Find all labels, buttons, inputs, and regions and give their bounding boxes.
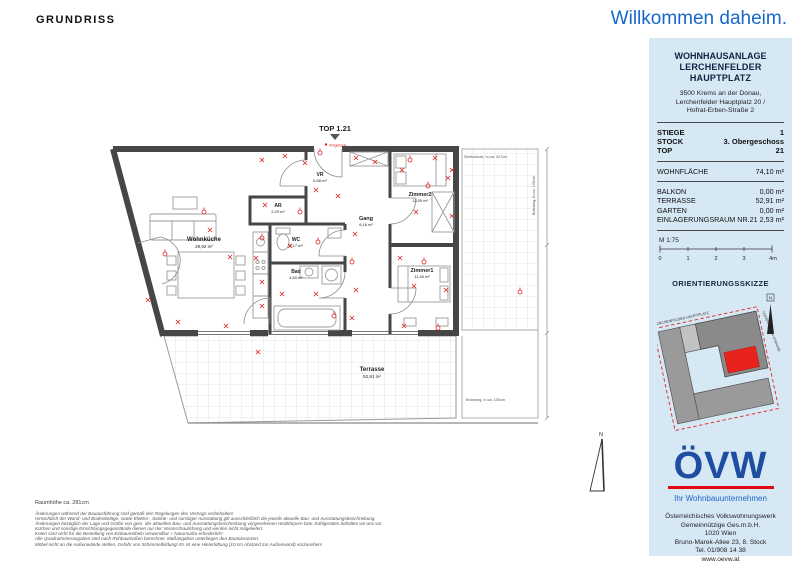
project-title: WOHNHAUSANLAGE LERCHENFELDER HAUPTPLATZ [657,51,784,84]
north-arrow: N [590,432,604,491]
floorplan-drawing: TOP 1.21 Klingeltaste Wohnküche 29,92 m²… [0,0,648,566]
area-row: TERRASSE 52,91 m² [657,196,784,205]
ovw-logo-text: ÖVW [657,445,784,487]
room-area: 6,16 m² [359,222,373,227]
divider [657,181,784,182]
terrace-surface [164,149,538,423]
top-label: TOP 1.21 [319,124,351,133]
address-line: Hofrat-Erben-Straße 2 [657,107,784,116]
company-line: 1020 Wien [657,530,784,539]
company-line: Gemeinnützige Ges.m.b.H. [657,522,784,531]
row-label: TERRASSE [657,196,696,205]
company-line: Bruno-Marek-Allee 23, 8. Stock [657,539,784,548]
sketch-north-label: N [769,296,772,301]
room-height-note: Raumhöhe ca. 281cm [35,500,615,506]
room-area: 2,29 m² [271,209,285,214]
room-area: 2,17 m² [289,243,303,248]
project-title-line1: WOHNHAUSANLAGE [657,51,784,62]
bruestung-bottom-label: Brüstung, h=ca. 100cm [466,398,505,402]
footnotes: Raumhöhe ca. 281cm Änderungen während de… [35,500,615,547]
company-line: Österreichisches Volkswohnungswerk [657,513,784,522]
outdoor-area-rows: BALKON 0,00 m² TERRASSE 52,91 m² GARTEN … [657,187,784,224]
row-value: 21 [776,146,784,155]
plan-sheet: GRUNDRISS Willkommen daheim. [0,0,800,566]
row-value: 74,10 m² [756,167,784,176]
room-name: Terrasse [360,367,385,373]
north-label: N [599,432,603,438]
room-area: 13,09 m² [412,198,428,203]
entrance-arrow-icon [330,134,340,140]
company-line: Tel. 01/908 14 38 [657,547,784,556]
row-value: 3. Obergeschoss [724,137,784,146]
scale-tick: 2 [714,256,717,262]
room-area: 11,40 m² [414,274,430,279]
company-website: www.oevw.at [657,556,784,565]
row-label: TOP [657,146,672,155]
row-label: GARTEN [657,206,687,215]
company-logo: ÖVW Ihr Wohnbauunternehmen [657,445,784,503]
row-label: STOCK [657,137,683,146]
row-value: 2,53 m² [760,215,784,224]
divider [657,122,784,123]
project-title-line2: LERCHENFELDER HAUPTPLATZ [657,62,784,84]
scale-tick: 3 [742,256,745,262]
unit-row: STOCK 3. Obergeschoss [657,137,784,146]
divider [657,230,784,231]
row-label: EINLAGERUNGSRAUM NR.21 [657,215,758,224]
scale-tick: 0 [658,256,661,262]
scale-block: M 1:75 0 1 2 3 4m [657,237,784,267]
row-label: WOHNFLÄCHE [657,167,708,176]
unit-info-rows: STIEGE 1 STOCK 3. Obergeschoss TOP 21 [657,128,784,156]
doorbell-label: Klingeltaste [329,144,347,148]
row-value: 0,00 m² [760,187,784,196]
area-row: EINLAGERUNGSRAUM NR.21 2,53 m² [657,215,784,224]
area-row: BALKON 0,00 m² [657,187,784,196]
row-value: 52,91 m² [756,196,784,205]
unit-row: TOP 21 [657,146,784,155]
address-line: Lerchenfelder Hauptplatz 20 / [657,99,784,108]
living-area-row: WOHNFLÄCHE 74,10 m² [657,162,784,181]
sketch-north-arrow: N [767,294,774,334]
orientation-sketch: LERCHENFELDER HAUPTPLATZ HOFRAT-ERBEN-ST… [657,288,784,438]
scale-tick: 4m [769,256,777,262]
scale-label: M 1:75 [659,237,784,244]
scale-bar: 0 1 2 3 4m [657,244,784,262]
row-value: 1 [780,128,784,137]
doorbell-icon [325,143,327,145]
project-address: 3500 Krems an der Donau, Lerchenfelder H… [657,90,784,116]
area-row: GARTEN 0,00 m² [657,206,784,215]
scale-tick: 1 [686,256,689,262]
bruestung-right-label: Brüstung, h=ca. 100cm [532,176,536,215]
row-label: STIEGE [657,128,685,137]
row-label: BALKON [657,187,686,196]
sichtschutz-label: Sichtschutz, h=ca. 207cm [464,155,507,159]
info-sidebar: WOHNHAUSANLAGE LERCHENFELDER HAUPTPLATZ … [649,38,792,556]
room-name: Wohnküche [187,237,222,243]
room-area: 4,60 m² [289,275,303,280]
room-area: 52,91 m² [363,374,381,379]
room-area: 29,92 m² [195,244,213,249]
disclaimer-line: Möbel nicht an die Außenwände stellen, G… [35,542,615,547]
room-area: 6,58 m² [313,178,327,183]
address-line: 3500 Krems an der Donau, [657,90,784,99]
row-value: 0,00 m² [760,206,784,215]
entrance-marker: TOP 1.21 Klingeltaste [319,124,351,148]
ovw-tagline: Ihr Wohnbauunternehmen [657,494,784,503]
dimension-line [545,147,549,420]
orientation-title: ORIENTIERUNGSSKIZZE [657,279,784,288]
company-info: Österreichisches Volkswohnungswerk Gemei… [657,513,784,565]
unit-row: STIEGE 1 [657,128,784,137]
